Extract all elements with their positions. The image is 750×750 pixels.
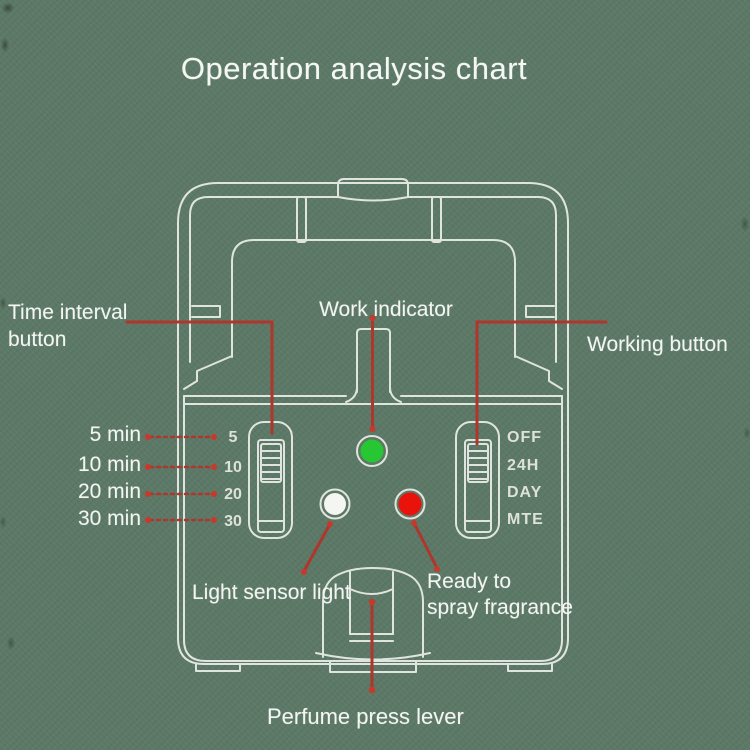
light-sensor-connector (304, 524, 330, 571)
spray-connector (414, 523, 437, 568)
right-shoulder (515, 356, 562, 389)
spray-indicator-led (399, 493, 422, 516)
light-sensor-led (324, 493, 346, 515)
dotted-time-connectors (150, 437, 212, 520)
time-option-label: 10 min (0, 453, 141, 477)
working-mode: DAY (507, 484, 542, 502)
operation-analysis-diagram: Operation analysis chart Time interval b… (0, 0, 750, 750)
working-mode: MTE (507, 511, 544, 529)
page-title: Operation analysis chart (168, 51, 540, 87)
light-sensor-label: Light sensor light (192, 579, 351, 606)
work-indicator-led (361, 440, 384, 463)
right-clip-tab (526, 306, 554, 317)
left-clip-tab (192, 306, 220, 317)
left-foot (196, 664, 240, 671)
left-shoulder (184, 356, 232, 389)
working-mode: 24H (507, 457, 539, 475)
time-option-label: 20 min (0, 480, 141, 504)
time-mark: 30 (215, 513, 251, 531)
time-mark: 10 (215, 459, 251, 477)
working-mode: OFF (507, 429, 542, 447)
time-slider-switch (249, 422, 292, 538)
right-slot (432, 197, 441, 242)
right-foot (508, 664, 552, 671)
work-indicator-label: Work indicator (300, 296, 472, 323)
perfume-press-lever-label: Perfume press lever (267, 703, 464, 730)
left-slot (297, 197, 306, 242)
time-interval-button-label: Time interval button (8, 299, 158, 353)
time-option-label: 5 min (0, 423, 141, 447)
ready-to-spray-line2: spray fragrance (427, 595, 573, 621)
time-mark: 20 (215, 486, 251, 504)
ready-to-spray-line1: Ready to (427, 569, 511, 595)
working-button-label: Working button (587, 331, 728, 358)
time-mark: 5 (215, 429, 251, 447)
device-line-art (0, 0, 750, 750)
time-option-label: 30 min (0, 507, 141, 531)
